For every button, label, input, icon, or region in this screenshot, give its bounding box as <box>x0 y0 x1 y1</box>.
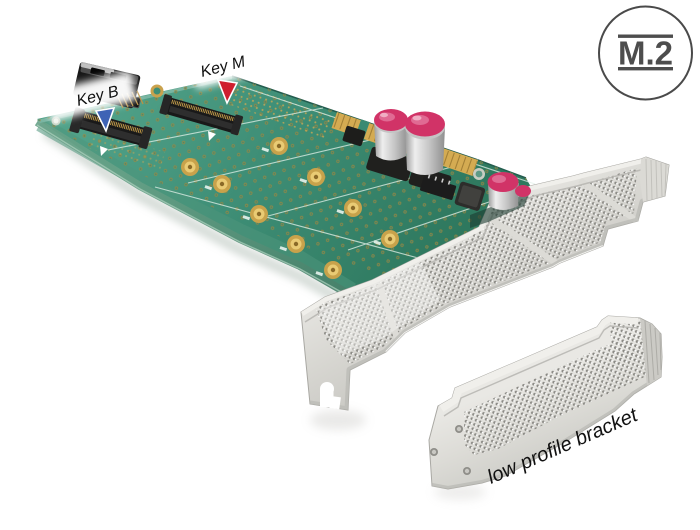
svg-text:M.2: M.2 <box>618 35 673 72</box>
